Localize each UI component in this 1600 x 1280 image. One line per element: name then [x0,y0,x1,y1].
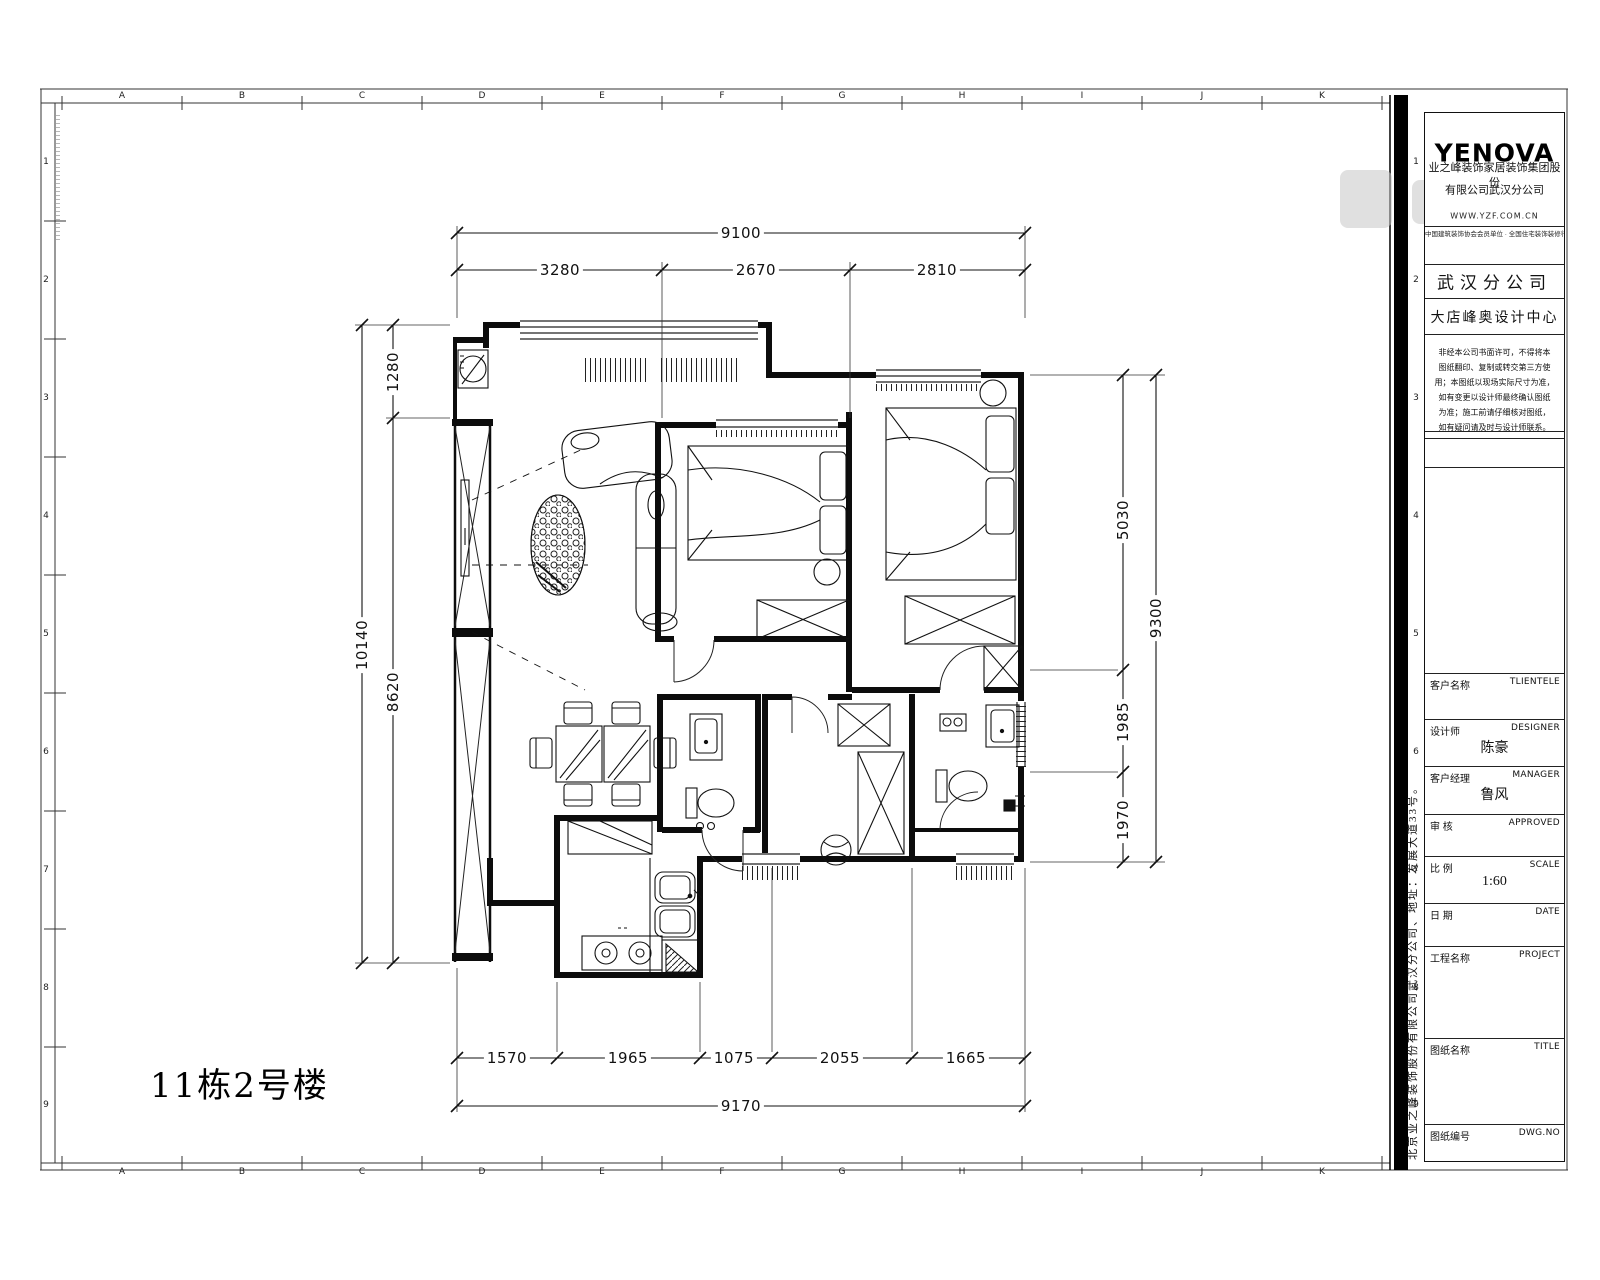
company-slogan: 中国建筑装饰协会会员单位 · 全国住宅装饰装修行业百强企业 [1425,228,1564,238]
grid-number-right: 3 [1413,393,1419,403]
row-en-manager: MANAGER [1512,770,1560,780]
walls-light [455,337,1021,830]
row-en-title: TITLE [1534,1042,1560,1052]
window-hatch [742,866,800,880]
grid-letter-top: I [1081,91,1084,101]
grid-number-right: 4 [1413,511,1419,521]
dim-bottom-seg: 1075 [711,1049,757,1067]
grid-number-right: 5 [1413,629,1419,639]
divider [1425,431,1564,432]
drawing-sheet: A B C D E F G H I J K A B C D E F G H I … [0,0,1600,1280]
notice-line: 用；本图纸以现场实际尺寸为准， [1429,375,1560,390]
dim-bottom-seg: 1965 [605,1049,651,1067]
row-label-title: 图纸名称 [1430,1042,1470,1057]
window-sill-hatch [876,384,981,391]
dim-right-seg: 1970 [1114,797,1132,843]
dim-bottom-total: 9170 [718,1097,764,1115]
grid-letter-bottom: I [1081,1167,1084,1177]
grid-letter-bottom: E [599,1167,605,1177]
row-label-approved: 审 核 [1430,818,1453,833]
row-label-dwgno: 图纸编号 [1430,1128,1470,1143]
divider [1425,226,1564,227]
grid-letter-bottom: B [239,1167,245,1177]
divider [1425,298,1564,299]
divider [1425,766,1564,767]
row-label-scale: 比 例 [1430,860,1453,875]
company-name-line2: 有限公司武汉分公司 [1425,184,1564,199]
row-label-date: 日 期 [1430,907,1453,922]
dim-left-total: 10140 [353,617,371,673]
row-value-scale: 1:60 [1425,874,1564,890]
row-value-designer: 陈豪 [1425,737,1564,757]
curtain-symbol [585,358,649,382]
grid-letter-top: K [1319,91,1325,101]
row-en-scale: SCALE [1530,860,1560,870]
dim-bottom-seg: 1570 [484,1049,530,1067]
grid-letter-bottom: C [359,1167,365,1177]
dim-lines [362,233,1156,1106]
row-en-clientele: TLIENTELE [1510,677,1560,687]
plan-title: 11栋2号楼 [150,1058,329,1107]
company-website: WWW.YZF.COM.CN [1425,212,1564,221]
notice-text: 非经本公司书面许可，不得将本 图纸翻印、复制或转交第三方使 用；本图纸以现场实际… [1429,345,1560,435]
titleblock-side-text: 北京业之峰装饰股份有限公司武汉分公司、地址：发展大道33号。 [1404,781,1420,1160]
divider [1425,814,1564,815]
divider [1425,467,1564,468]
row-label-clientele: 客户名称 [1430,677,1470,692]
balcony-strip [452,419,493,962]
plot-info-stamp [56,115,60,240]
row-en-date: DATE [1535,907,1560,917]
grid-letter-bottom: K [1319,1167,1325,1177]
grid-number-right: 6 [1413,747,1419,757]
grid-number-left: 4 [43,511,49,521]
divider [1425,673,1564,674]
divider [1425,903,1564,904]
grid-letter-top: J [1201,91,1204,101]
notice-line: 图纸翻印、复制或转交第三方使 [1429,360,1560,375]
dim-extensions [355,226,1165,1112]
grid-number-right: 1 [1413,157,1419,167]
window-sill-hatch [716,430,838,437]
grid-number-left: 9 [43,1100,49,1110]
row-en-designer: DESIGNER [1511,723,1560,733]
grid-number-left: 5 [43,629,49,639]
grid-letter-bottom: F [719,1167,724,1177]
title-block: YENOVA 业之峰装饰家居装饰集团股份 有限公司武汉分公司 WWW.YZF.C… [1424,112,1565,1162]
divider [1425,1124,1564,1125]
design-center-name: 大店峰奥设计中心 [1425,307,1564,327]
row-en-approved: APPROVED [1509,818,1560,828]
row-label-manager: 客户经理 [1430,770,1470,785]
grid-number-right: 2 [1413,275,1419,285]
grid-letter-bottom: J [1201,1167,1204,1177]
dim-ticks [356,227,1162,1112]
notice-line: 非经本公司书面许可，不得将本 [1429,345,1560,360]
divider [1425,719,1564,720]
row-label-project: 工程名称 [1430,950,1470,965]
grid-letter-bottom: H [959,1167,966,1177]
frame-lines [40,89,1568,1170]
divider [1425,856,1564,857]
grid-letter-top: D [479,91,486,101]
grid-number-left: 8 [43,983,49,993]
grid-letter-top: A [119,91,125,101]
grid-number-left: 6 [43,747,49,757]
row-label-designer: 设计师 [1430,723,1460,738]
dim-top-seg: 2670 [733,261,779,279]
dim-right-total: 9300 [1147,595,1165,641]
grid-number-left: 2 [43,275,49,285]
divider [1425,334,1564,335]
dim-left-seg: 1280 [384,349,402,395]
divider [1425,438,1564,439]
notice-line: 如有变更以设计师最终确认图纸 [1429,390,1560,405]
grid-number-left: 3 [43,393,49,403]
grid-number-left: 1 [43,157,49,167]
grid-letter-bottom: D [479,1167,486,1177]
divider [1425,264,1564,265]
dim-left-seg: 8620 [384,669,402,715]
grid-number-left: 7 [43,865,49,875]
dim-right-seg: 1985 [1114,699,1132,745]
grid-letter-top: B [239,91,245,101]
grid-letter-top: F [719,91,724,101]
grid-letter-top: H [959,91,966,101]
grid-letter-top: G [839,91,846,101]
dim-top-seg: 2810 [914,261,960,279]
divider [1425,946,1564,947]
dim-top-seg: 3280 [537,261,583,279]
divider [1425,1038,1564,1039]
row-en-project: PROJECT [1519,950,1560,960]
dim-bottom-seg: 2055 [817,1049,863,1067]
window-hatch [1016,703,1026,767]
curtain-symbol [661,358,737,382]
grid-letter-bottom: A [119,1167,125,1177]
furniture [458,350,1025,975]
row-en-dwgno: DWG.NO [1519,1128,1560,1138]
window-hatch [956,866,1014,880]
dim-bottom-seg: 1665 [943,1049,989,1067]
grid-letter-top: C [359,91,365,101]
notice-line: 如有疑问请及时与设计师联系。 [1429,420,1560,435]
watermark [1340,170,1392,228]
dim-right-seg: 5030 [1114,497,1132,543]
row-value-manager: 鲁风 [1425,784,1564,804]
grid-letter-top: E [599,91,605,101]
dim-top-total: 9100 [718,224,764,242]
branch-name: 武汉分公司 [1425,269,1564,294]
notice-line: 为准；施工前请仔细核对图纸， [1429,405,1560,420]
grid-letter-bottom: G [839,1167,846,1177]
